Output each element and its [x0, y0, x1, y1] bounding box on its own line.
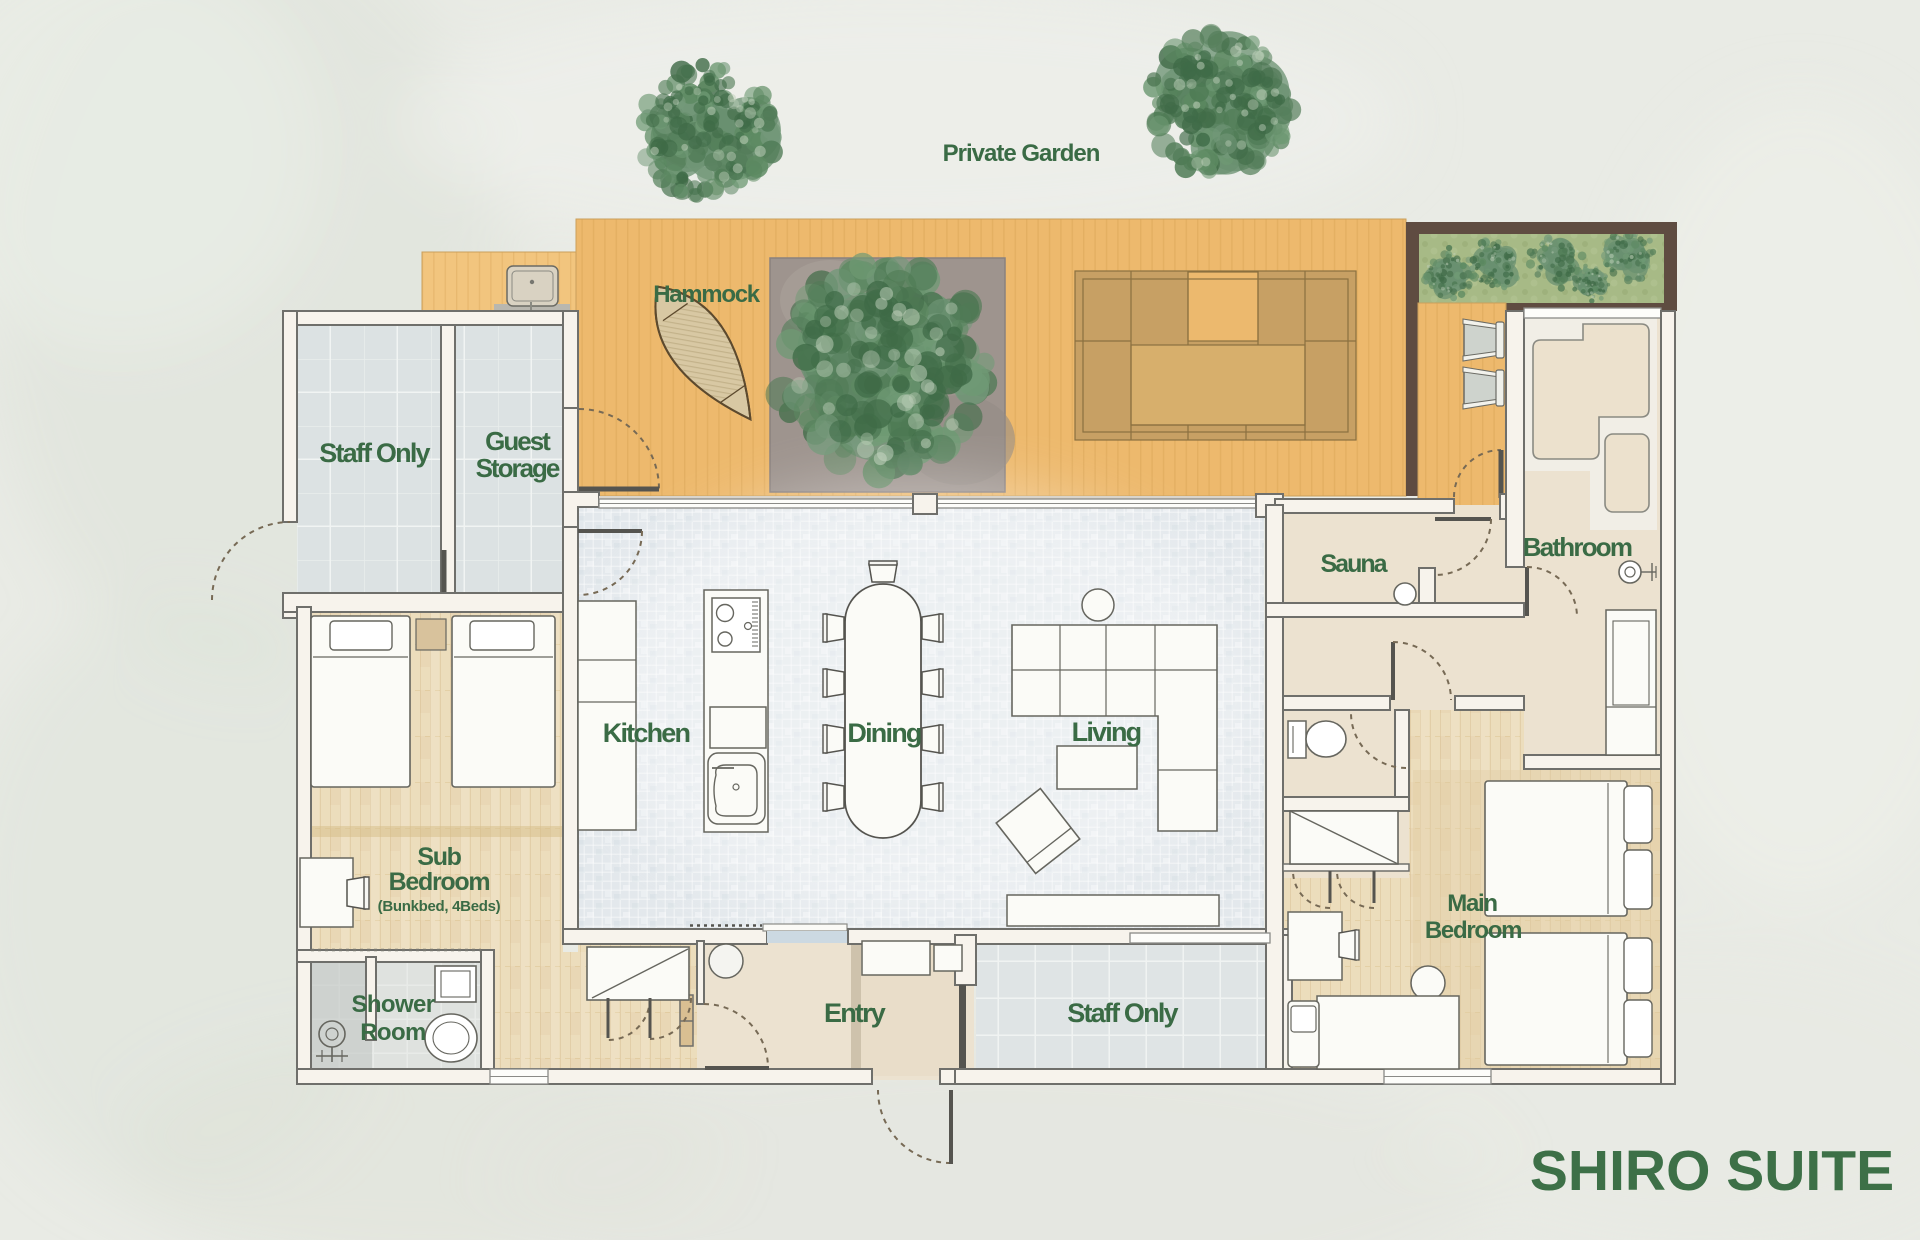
svg-text:Shower: Shower [351, 991, 434, 1018]
svg-text:Storage: Storage [476, 453, 560, 483]
svg-text:(Bunkbed, 4Beds): (Bunkbed, 4Beds) [378, 898, 501, 915]
svg-text:Room: Room [360, 1019, 426, 1046]
svg-text:Guest: Guest [485, 426, 551, 456]
svg-text:Staff Only: Staff Only [319, 438, 430, 468]
svg-text:Staff Only: Staff Only [1067, 998, 1178, 1028]
svg-text:Main: Main [1447, 890, 1497, 917]
svg-text:Hammock: Hammock [653, 281, 761, 308]
svg-text:Bedroom: Bedroom [1425, 917, 1521, 944]
svg-text:Entry: Entry [824, 998, 886, 1028]
svg-text:Kitchen: Kitchen [603, 718, 690, 748]
svg-text:Bedroom: Bedroom [389, 868, 490, 896]
svg-text:Dining: Dining [847, 718, 920, 748]
svg-text:Sub: Sub [417, 843, 461, 871]
svg-text:Sauna: Sauna [1320, 550, 1388, 578]
svg-text:Bathroom: Bathroom [1523, 532, 1632, 562]
svg-text:SHIRO SUITE: SHIRO SUITE [1530, 1139, 1894, 1203]
svg-text:Living: Living [1072, 717, 1141, 747]
svg-text:Private Garden: Private Garden [943, 140, 1100, 167]
